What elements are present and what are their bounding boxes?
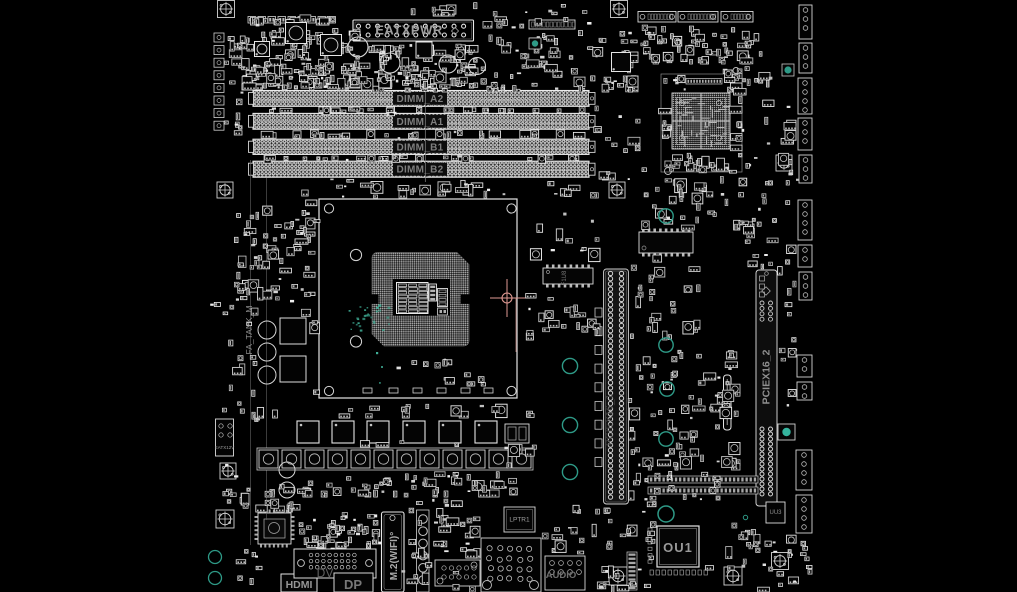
svg-text:OU1: OU1 — [663, 540, 693, 555]
svg-text:DIMM_A2: DIMM_A2 — [396, 94, 443, 105]
svg-text:LPTR1: LPTR1 — [509, 517, 530, 524]
svg-text:UU3: UU3 — [769, 510, 782, 516]
svg-text:DIMM_B1: DIMM_B1 — [396, 142, 443, 153]
svg-text:EATX12V: EATX12V — [215, 445, 234, 450]
svg-text:PCIEX16_2: PCIEX16_2 — [761, 349, 773, 404]
svg-text:DIMM_B2: DIMM_B2 — [396, 165, 443, 176]
svg-text:DIMM_A1: DIMM_A1 — [396, 117, 443, 128]
svg-text:AUDIO: AUDIO — [546, 570, 577, 581]
svg-text:DV: DV — [317, 566, 334, 580]
svg-text:PCIEX16_1: PCIEX16_1 — [605, 393, 616, 446]
svg-text:HDMI: HDMI — [286, 579, 313, 591]
svg-text:F1U8: F1U8 — [562, 270, 568, 285]
svg-text:EATXPWR: EATXPWR — [375, 23, 443, 38]
svg-text:M.2(WIFI)°: M.2(WIFI)° — [389, 532, 400, 580]
svg-text:DP: DP — [344, 577, 362, 592]
